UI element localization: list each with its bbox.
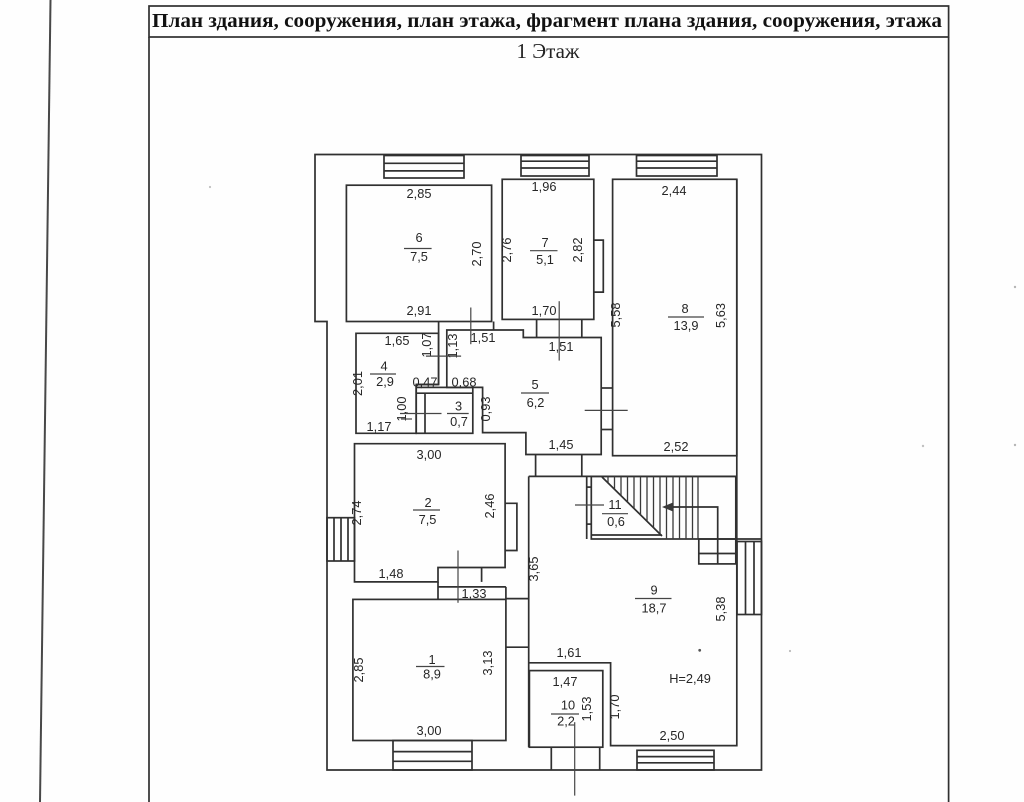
svg-text:1 Этаж: 1 Этаж (517, 39, 580, 63)
svg-text:7: 7 (541, 235, 548, 250)
svg-text:2,74: 2,74 (349, 501, 364, 526)
svg-text:1,65: 1,65 (385, 333, 410, 348)
svg-text:1,45: 1,45 (549, 437, 574, 452)
svg-text:8,9: 8,9 (423, 667, 441, 682)
svg-text:0,7: 0,7 (450, 414, 468, 429)
svg-text:5,1: 5,1 (536, 252, 554, 267)
svg-text:1,51: 1,51 (471, 330, 496, 345)
svg-text:4: 4 (380, 359, 387, 374)
svg-text:18,7: 18,7 (642, 601, 667, 616)
svg-text:3,65: 3,65 (526, 557, 541, 582)
svg-text:1,70: 1,70 (607, 695, 622, 720)
svg-text:9: 9 (650, 583, 657, 598)
svg-text:6,2: 6,2 (527, 395, 545, 410)
svg-text:2,82: 2,82 (570, 238, 585, 263)
svg-text:5,58: 5,58 (608, 303, 623, 328)
svg-text:2: 2 (424, 495, 431, 510)
svg-text:3,00: 3,00 (417, 447, 442, 462)
svg-text:1,48: 1,48 (379, 566, 404, 581)
svg-text:5,38: 5,38 (713, 597, 728, 622)
svg-text:Н=2,49: Н=2,49 (669, 671, 711, 686)
svg-text:1,70: 1,70 (532, 303, 557, 318)
svg-text:3,13: 3,13 (480, 651, 495, 676)
svg-text:11: 11 (608, 497, 621, 512)
svg-text:8: 8 (681, 301, 688, 316)
svg-text:7,5: 7,5 (419, 512, 437, 527)
svg-text:1,47: 1,47 (553, 674, 578, 689)
svg-text:2,50: 2,50 (660, 728, 685, 743)
svg-text:6: 6 (415, 230, 422, 245)
svg-text:2,70: 2,70 (469, 242, 484, 267)
svg-text:5: 5 (531, 377, 538, 392)
svg-text:2,01: 2,01 (350, 371, 365, 396)
svg-text:1,07: 1,07 (419, 333, 434, 358)
svg-text:10: 10 (561, 698, 575, 713)
svg-text:2,85: 2,85 (351, 658, 366, 683)
svg-text:2,52: 2,52 (664, 439, 689, 454)
svg-text:2,91: 2,91 (407, 303, 432, 318)
svg-text:План здания, сооружения, план: План здания, сооружения, план этажа, фра… (152, 10, 942, 32)
svg-text:1,13: 1,13 (445, 334, 460, 359)
svg-text:3: 3 (455, 399, 462, 414)
svg-text:1,53: 1,53 (579, 697, 594, 722)
svg-text:2,44: 2,44 (662, 183, 687, 198)
svg-text:1,51: 1,51 (549, 339, 574, 354)
svg-text:1,61: 1,61 (557, 645, 582, 660)
svg-text:1,96: 1,96 (532, 179, 557, 194)
svg-text:2,76: 2,76 (499, 238, 514, 263)
svg-text:2,9: 2,9 (376, 374, 394, 389)
svg-text:2,85: 2,85 (407, 186, 432, 201)
svg-text:1,00: 1,00 (394, 397, 409, 422)
svg-text:2,2: 2,2 (557, 714, 575, 729)
svg-text:0,93: 0,93 (478, 397, 493, 422)
svg-text:1: 1 (428, 652, 435, 667)
svg-text:1,17: 1,17 (367, 419, 392, 434)
svg-text:13,9: 13,9 (674, 318, 699, 333)
svg-text:0,6: 0,6 (607, 514, 625, 529)
svg-text:3,00: 3,00 (417, 723, 442, 738)
svg-text:5,63: 5,63 (713, 303, 728, 328)
svg-text:7,5: 7,5 (410, 249, 428, 264)
svg-text:2,46: 2,46 (482, 494, 497, 519)
